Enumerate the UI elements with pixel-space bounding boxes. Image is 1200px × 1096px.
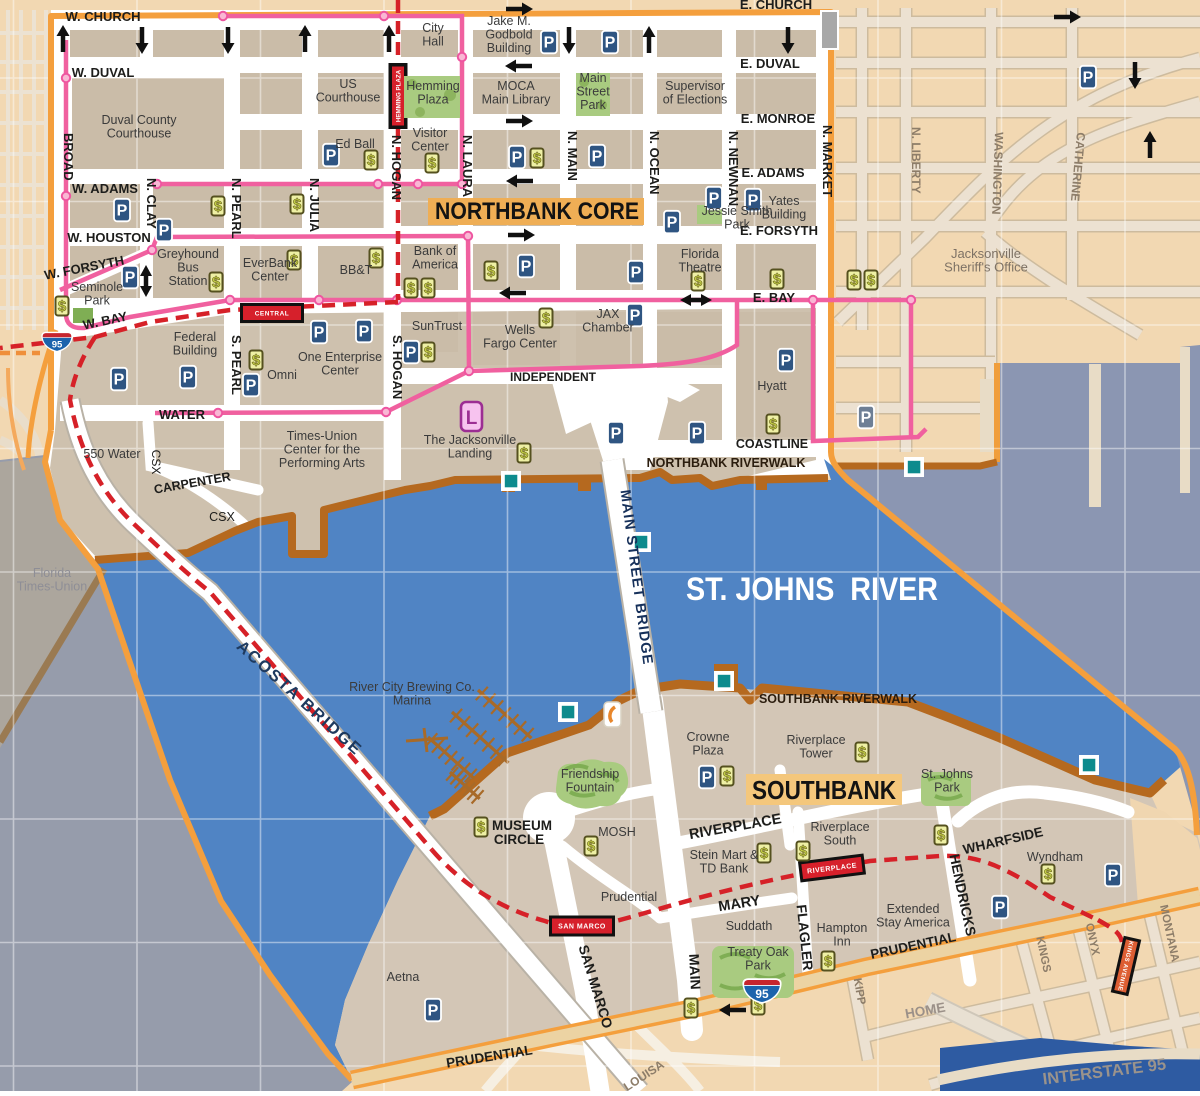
svg-text:Fountain: Fountain	[566, 781, 615, 795]
svg-text:Center for the: Center for the	[284, 443, 360, 457]
svg-text:P: P	[605, 35, 616, 52]
svg-text:N. MAIN: N. MAIN	[565, 131, 580, 181]
svg-text:$: $	[252, 352, 261, 369]
svg-text:SOUTHBANK: SOUTHBANK	[752, 775, 896, 805]
svg-text:P: P	[781, 353, 792, 370]
svg-text:P: P	[702, 770, 713, 787]
svg-text:One Enterprise: One Enterprise	[298, 350, 382, 364]
svg-text:$: $	[824, 953, 833, 970]
svg-text:$: $	[520, 445, 529, 462]
svg-text:$: $	[58, 298, 67, 315]
svg-text:NORTHBANK CORE: NORTHBANK CORE	[435, 198, 639, 225]
svg-text:Courthouse: Courthouse	[316, 91, 381, 105]
svg-text:P: P	[159, 223, 170, 240]
svg-text:City: City	[422, 21, 444, 35]
svg-text:Park: Park	[724, 218, 750, 232]
svg-text:P: P	[183, 370, 194, 387]
svg-text:JAX: JAX	[597, 307, 621, 321]
svg-text:$: $	[542, 310, 551, 327]
svg-text:SAN MARCO: SAN MARCO	[558, 924, 606, 931]
svg-text:INDEPENDENT: INDEPENDENT	[510, 370, 597, 384]
svg-text:Riverplace: Riverplace	[786, 733, 845, 747]
svg-text:N. PEARL: N. PEARL	[229, 178, 244, 239]
svg-text:Hall: Hall	[422, 35, 444, 49]
svg-text:Building: Building	[173, 344, 218, 358]
svg-text:N. HOGAN: N. HOGAN	[389, 135, 404, 200]
svg-text:Visitor: Visitor	[413, 126, 448, 140]
svg-text:MUSEUM: MUSEUM	[492, 818, 552, 833]
svg-text:N. CLAY: N. CLAY	[144, 178, 159, 229]
svg-text:N. LAURA: N. LAURA	[460, 135, 475, 198]
svg-text:Stein Mart &: Stein Mart &	[690, 848, 759, 862]
svg-text:$: $	[769, 416, 778, 433]
svg-text:P: P	[314, 325, 325, 342]
svg-text:BROAD: BROAD	[61, 133, 76, 181]
svg-text:Sheriff's Office: Sheriff's Office	[944, 260, 1028, 275]
svg-text:$: $	[372, 250, 381, 267]
svg-text:$: $	[487, 263, 496, 280]
svg-text:Building: Building	[762, 208, 807, 222]
svg-text:WATER: WATER	[159, 407, 206, 422]
svg-text:$: $	[687, 1000, 696, 1017]
svg-text:$: $	[587, 838, 596, 855]
svg-text:CSX: CSX	[149, 450, 163, 475]
svg-text:Extended: Extended	[887, 902, 940, 916]
svg-text:Greyhound: Greyhound	[157, 247, 219, 261]
svg-text:Hampton: Hampton	[817, 921, 868, 935]
svg-text:BB&T: BB&T	[340, 263, 373, 277]
svg-text:Ed Ball: Ed Ball	[335, 137, 375, 151]
svg-text:Park: Park	[580, 98, 606, 112]
svg-text:Center: Center	[411, 140, 449, 154]
svg-text:W. HOUSTON: W. HOUSTON	[67, 230, 151, 245]
svg-text:Godbold: Godbold	[485, 28, 532, 42]
svg-text:Seminole: Seminole	[71, 280, 123, 294]
svg-text:MAIN: MAIN	[686, 953, 704, 990]
svg-text:NORTHBANK RIVERWALK: NORTHBANK RIVERWALK	[647, 456, 806, 470]
svg-text:Wyndham: Wyndham	[1027, 850, 1083, 864]
svg-text:America: America	[412, 258, 458, 272]
svg-text:WASHINGTON: WASHINGTON	[989, 132, 1006, 215]
svg-text:Center: Center	[251, 270, 289, 284]
svg-text:P: P	[114, 372, 125, 389]
svg-text:$: $	[760, 845, 769, 862]
svg-text:Suddath: Suddath	[726, 919, 773, 933]
svg-text:W. ADAMS: W. ADAMS	[72, 181, 138, 196]
svg-text:P: P	[611, 426, 622, 443]
svg-text:US: US	[339, 77, 356, 91]
svg-text:$: $	[858, 744, 867, 761]
svg-text:Friendship: Friendship	[561, 767, 619, 781]
svg-text:Bank of: Bank of	[414, 244, 457, 258]
svg-text:Yates: Yates	[768, 194, 799, 208]
svg-text:Building: Building	[487, 41, 532, 55]
svg-text:$: $	[773, 271, 782, 288]
svg-text:CIRCLE: CIRCLE	[494, 832, 544, 847]
svg-text:TD Bank: TD Bank	[700, 862, 749, 876]
svg-text:$: $	[407, 280, 416, 297]
svg-text:N. MARKET: N. MARKET	[820, 125, 835, 197]
svg-text:Main: Main	[579, 71, 606, 85]
svg-text:Hyatt: Hyatt	[757, 379, 787, 393]
svg-text:E. CHURCH: E. CHURCH	[740, 0, 812, 12]
svg-text:Treaty Oak: Treaty Oak	[727, 945, 789, 959]
svg-text:$: $	[214, 198, 223, 215]
svg-text:Wells: Wells	[505, 323, 535, 337]
svg-text:W. CHURCH: W. CHURCH	[65, 9, 140, 24]
svg-text:Street: Street	[576, 85, 610, 99]
svg-text:Tower: Tower	[799, 747, 832, 761]
svg-text:$: $	[533, 150, 542, 167]
svg-text:Stay America: Stay America	[876, 916, 950, 930]
svg-text:Omni: Omni	[267, 368, 297, 382]
svg-text:Riverplace: Riverplace	[810, 820, 869, 834]
svg-text:E. DUVAL: E. DUVAL	[740, 56, 800, 71]
svg-text:$: $	[424, 344, 433, 361]
svg-text:Theatre: Theatre	[678, 261, 721, 275]
svg-text:P: P	[995, 900, 1006, 917]
svg-text:$: $	[937, 827, 946, 844]
svg-text:P: P	[521, 259, 532, 276]
svg-text:Performing Arts: Performing Arts	[279, 456, 365, 470]
svg-text:Plaza: Plaza	[417, 93, 448, 107]
svg-text:Prudential: Prudential	[601, 890, 657, 904]
svg-text:Hemming: Hemming	[406, 79, 460, 93]
svg-text:P: P	[428, 1003, 439, 1020]
svg-text:of Elections: of Elections	[663, 93, 728, 107]
svg-text:P: P	[692, 426, 703, 443]
svg-text:$: $	[424, 280, 433, 297]
svg-text:E. MONROE: E. MONROE	[741, 111, 816, 126]
svg-text:95: 95	[755, 987, 769, 1001]
svg-text:Plaza: Plaza	[692, 744, 723, 758]
svg-text:$: $	[723, 768, 732, 785]
svg-text:$: $	[1044, 866, 1053, 883]
svg-text:P: P	[117, 203, 128, 220]
svg-text:HEMMING PLAZA: HEMMING PLAZA	[395, 69, 402, 122]
svg-text:MOSH: MOSH	[598, 825, 636, 839]
svg-text:South: South	[824, 834, 857, 848]
svg-text:P: P	[246, 378, 257, 395]
svg-text:N. JULIA: N. JULIA	[307, 178, 322, 233]
svg-text:P: P	[544, 35, 555, 52]
svg-text:$: $	[293, 196, 302, 213]
svg-text:SunTrust: SunTrust	[412, 319, 463, 333]
svg-text:$: $	[428, 155, 437, 172]
svg-text:$: $	[367, 152, 376, 169]
svg-text:$: $	[212, 274, 221, 291]
svg-text:Fargo Center: Fargo Center	[483, 337, 557, 351]
svg-text:Inn: Inn	[833, 935, 850, 949]
svg-text:S. PEARL: S. PEARL	[229, 335, 244, 395]
svg-text:Courthouse: Courthouse	[107, 127, 172, 141]
svg-text:P: P	[861, 410, 872, 427]
svg-text:Aetna: Aetna	[387, 970, 420, 984]
svg-text:E. BAY: E. BAY	[753, 290, 795, 305]
svg-text:$: $	[694, 273, 703, 290]
svg-text:N. LIBERTY: N. LIBERTY	[909, 127, 923, 194]
svg-text:River City Brewing Co.: River City Brewing Co.	[349, 680, 475, 694]
svg-text:S. HOGAN: S. HOGAN	[390, 335, 405, 399]
svg-text:N. NEWNAN: N. NEWNAN	[726, 131, 741, 206]
svg-text:E. ADAMS: E. ADAMS	[741, 165, 804, 180]
svg-text:CENTRAL: CENTRAL	[255, 310, 290, 317]
svg-text:Park: Park	[745, 959, 771, 973]
svg-text:Times-Union: Times-Union	[17, 580, 87, 594]
svg-text:P: P	[359, 324, 370, 341]
svg-text:Florida: Florida	[681, 247, 719, 261]
svg-text:P: P	[631, 265, 642, 282]
svg-text:Park: Park	[84, 294, 110, 308]
svg-text:Duval County: Duval County	[101, 113, 177, 127]
svg-text:N. OCEAN: N. OCEAN	[647, 131, 662, 195]
svg-text:COASTLINE: COASTLINE	[736, 437, 808, 451]
svg-text:E. FORSYTH: E. FORSYTH	[740, 223, 818, 238]
svg-text:$: $	[477, 819, 486, 836]
svg-text:Jake M.: Jake M.	[487, 14, 531, 28]
svg-text:MOCA: MOCA	[497, 79, 535, 93]
svg-text:Park: Park	[934, 781, 960, 795]
svg-text:Station: Station	[169, 274, 208, 288]
svg-text:EverBank: EverBank	[243, 256, 298, 270]
svg-text:CSX: CSX	[209, 510, 235, 524]
svg-text:Center: Center	[321, 364, 359, 378]
svg-text:$: $	[799, 843, 808, 860]
svg-text:P: P	[1083, 70, 1094, 87]
svg-text:Federal: Federal	[174, 330, 216, 344]
svg-text:Marina: Marina	[393, 694, 431, 708]
svg-text:Bus: Bus	[177, 261, 199, 275]
svg-text:P: P	[125, 270, 136, 287]
svg-text:550 Water: 550 Water	[83, 447, 140, 461]
svg-text:Crowne: Crowne	[686, 730, 729, 744]
svg-text:$: $	[850, 272, 859, 289]
svg-text:Landing: Landing	[448, 447, 493, 461]
svg-text:P: P	[592, 149, 603, 166]
svg-text:P: P	[1108, 868, 1119, 885]
svg-text:Supervisor: Supervisor	[665, 79, 725, 93]
svg-text:P: P	[667, 215, 678, 232]
svg-text:Main Library: Main Library	[482, 93, 552, 107]
svg-text:SOUTHBANK RIVERWALK: SOUTHBANK RIVERWALK	[759, 692, 917, 706]
svg-text:St. Johns: St. Johns	[921, 767, 973, 781]
svg-text:P: P	[406, 345, 417, 362]
svg-text:Chamber: Chamber	[582, 321, 633, 335]
svg-text:Times-Union: Times-Union	[287, 429, 357, 443]
svg-text:Florida: Florida	[33, 566, 71, 580]
svg-text:L: L	[466, 408, 478, 429]
svg-text:$: $	[867, 272, 876, 289]
svg-text:The Jacksonville: The Jacksonville	[424, 433, 516, 447]
svg-text:95: 95	[52, 339, 63, 350]
svg-text:P: P	[512, 150, 523, 167]
svg-text:W. DUVAL: W. DUVAL	[72, 65, 135, 80]
svg-text:ST. JOHNS RIVER: ST. JOHNS RIVER	[686, 571, 938, 607]
